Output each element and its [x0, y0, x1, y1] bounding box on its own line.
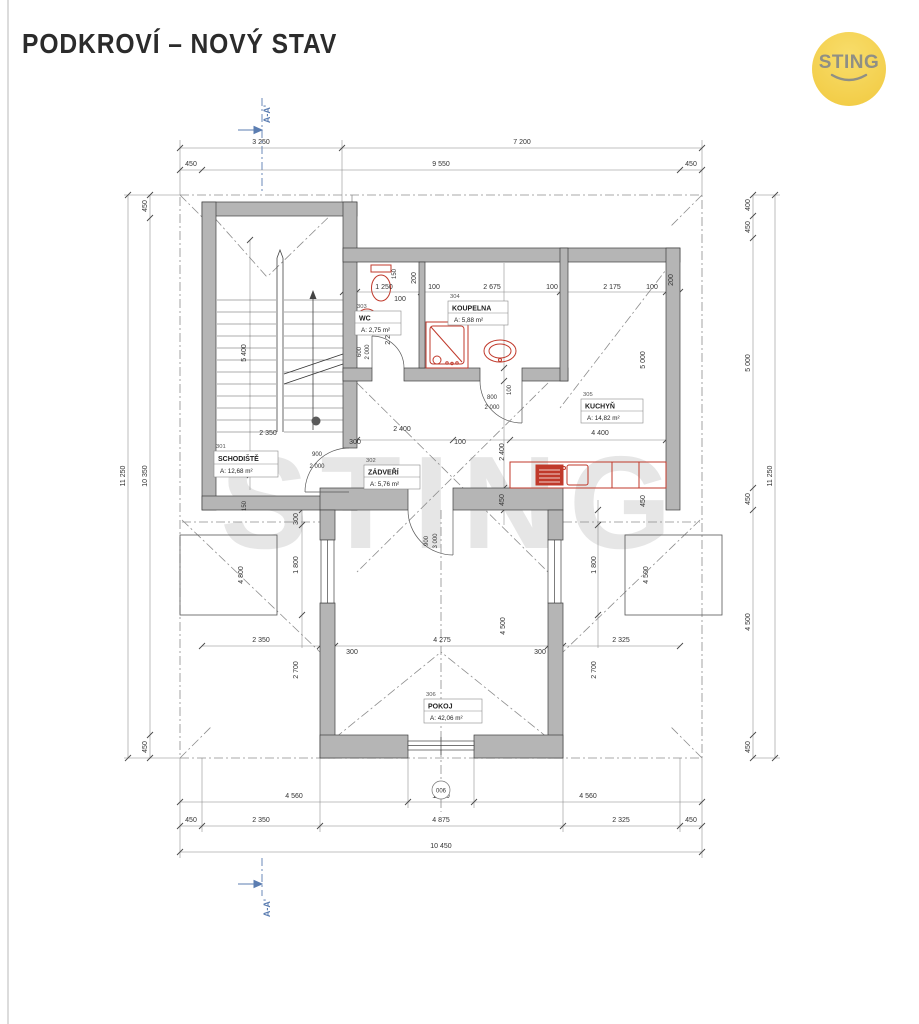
dim-label: 450 [745, 221, 752, 233]
dim-label: 450 [640, 495, 647, 507]
dim-label: 9 550 [432, 161, 450, 168]
dim-label: 1 250 [375, 284, 393, 291]
dim-label: 100 [546, 284, 558, 291]
dim-label: 100 [507, 384, 513, 395]
dim-label: 100 [428, 284, 440, 291]
dim-label: 7 200 [513, 139, 531, 146]
staircase [217, 250, 343, 432]
smile-icon [828, 72, 870, 86]
window-marker: 006 [432, 781, 450, 799]
page: STING A-A' A-A' [0, 0, 919, 1024]
dim-label: 4 400 [591, 430, 609, 437]
room-number: 302 [366, 458, 376, 464]
room-name: WC [359, 316, 371, 323]
dim-label: 450 [142, 200, 149, 212]
dim-label: 1 800 [293, 556, 300, 574]
dim-label: 200 [668, 274, 675, 286]
room-name: POKOJ [428, 704, 453, 711]
dim-label: 450 [142, 741, 149, 753]
dim-label: 4 800 [238, 566, 245, 584]
section-label-bottom: A-A' [262, 899, 272, 917]
sting-logo: STING [812, 32, 886, 106]
dim-label: 300 [349, 439, 361, 446]
dim-label: 5 000 [745, 354, 752, 372]
room-name: KUCHYŇ [585, 402, 615, 411]
dim-label: 300 [346, 649, 358, 656]
dim-label: 4 500 [745, 613, 752, 631]
dim-label: 2 700 [591, 661, 598, 679]
room-number: 305 [583, 392, 593, 398]
dim-label: 2 325 [612, 817, 630, 824]
room-name: SCHODIŠTĚ [218, 454, 259, 463]
dim-label: 2 175 [603, 284, 621, 291]
dim-label: 3 250 [252, 139, 270, 146]
dim-label: 4 875 [432, 817, 450, 824]
door-dim-label: 600 [357, 346, 363, 357]
dim-label: 2 400 [393, 426, 411, 433]
page-title: PODKROVÍ – NOVÝ STAV [22, 28, 337, 60]
dim-label: 2 350 [252, 637, 270, 644]
dim-label: 1 800 [591, 556, 598, 574]
room-name: KOUPELNA [452, 306, 491, 313]
dim-label: 2 675 [483, 284, 501, 291]
door-dim-label: 2 000 [365, 344, 371, 360]
dim-label: 100 [646, 284, 658, 291]
dim-label: 300 [534, 649, 546, 656]
dim-label: 450 [685, 817, 697, 824]
dim-label: 450 [185, 161, 197, 168]
dim-label: 400 [745, 199, 752, 211]
dim-label: 10 450 [430, 843, 452, 850]
dim-label: 10 350 [142, 465, 149, 487]
toilet-tank-icon [371, 265, 391, 272]
dim-label: 450 [499, 494, 506, 506]
dim-label: 2 350 [259, 430, 277, 437]
dim-label: 11 250 [120, 465, 127, 486]
dim-label: 2 400 [499, 443, 506, 461]
door-dim-label: 2 000 [309, 464, 325, 470]
room-name: ZÁDVEŘÍ [368, 468, 400, 477]
door-dim-label: 3 000 [433, 533, 439, 549]
dim-label: 100 [394, 296, 406, 303]
window-marker-label: 006 [436, 789, 447, 795]
dim-label: 4 560 [579, 793, 597, 800]
dim-label: 4 275 [433, 637, 451, 644]
dim-label: 100 [454, 439, 466, 446]
dim-label: 450 [745, 741, 752, 753]
dim-label: 200 [411, 272, 418, 284]
door-dim-label: 2 000 [484, 405, 500, 411]
dim-label: 450 [745, 493, 752, 505]
floor-plan: STING A-A' A-A' [0, 0, 919, 1024]
room-area: A: 5,76 m² [370, 481, 399, 488]
room-area: A: 42,06 m² [430, 715, 463, 722]
dim-label: 5 400 [241, 344, 248, 362]
section-label-top: A-A' [262, 105, 272, 123]
room-number: 306 [426, 692, 436, 698]
dim-label: 5 000 [640, 351, 647, 369]
room-area: A: 14,82 m² [587, 415, 620, 422]
dim-label: 450 [685, 161, 697, 168]
room-number: 303 [357, 304, 367, 310]
sting-logo-text: STING [819, 53, 880, 72]
dim-label: 4 500 [500, 617, 507, 635]
room-number: 304 [450, 294, 460, 300]
room-area: A: 5,88 m² [454, 317, 483, 324]
door-dim-label: 800 [487, 395, 498, 401]
dim-label: 4 560 [285, 793, 303, 800]
dim-label: 150 [392, 268, 398, 279]
dim-label: 300 [293, 513, 300, 525]
dim-label: 450 [185, 817, 197, 824]
dim-label: 2 350 [252, 817, 270, 824]
dim-label: 2 325 [612, 637, 630, 644]
door-dim-label: 900 [312, 452, 323, 458]
room-area: A: 2,75 m² [361, 327, 390, 334]
dim-label: 150 [242, 500, 248, 511]
dim-label: 11 250 [767, 465, 774, 486]
room-area: A: 12,68 m² [220, 468, 253, 475]
dim-label: 2 700 [293, 661, 300, 679]
room-number: 301 [216, 444, 226, 450]
door-dim-label: 900 [424, 535, 430, 546]
dim-label: 4 500 [643, 566, 650, 584]
